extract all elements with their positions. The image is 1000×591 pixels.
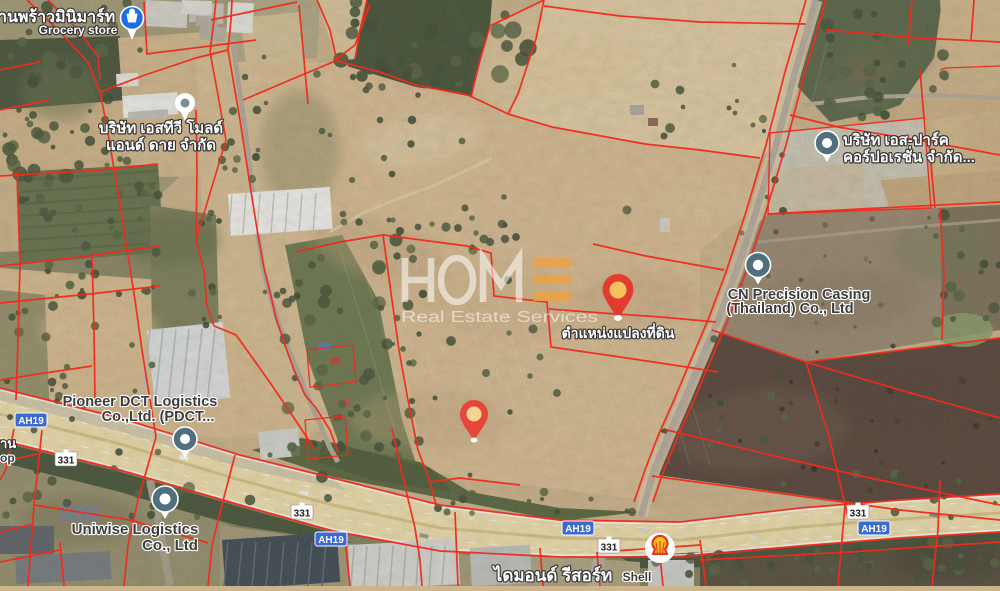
svg-text:Grocery store: Grocery store bbox=[39, 23, 118, 37]
svg-text:Real Estate Services: Real Estate Services bbox=[401, 309, 598, 326]
svg-text:บริษัท เอส-ปาร์ค: บริษัท เอส-ปาร์ค bbox=[843, 131, 949, 149]
svg-text:Co.,Ltd. (PDCT...: Co.,Ltd. (PDCT... bbox=[102, 409, 215, 425]
svg-text:าน: าน bbox=[0, 436, 16, 451]
svg-text:AH19: AH19 bbox=[861, 524, 887, 535]
svg-text:ตำแหน่งแปลงที่ดิน: ตำแหน่งแปลงที่ดิน bbox=[562, 323, 675, 341]
svg-text:Shell: Shell bbox=[623, 570, 652, 584]
svg-text:Uniwise Logistics: Uniwise Logistics bbox=[72, 521, 199, 538]
svg-text:(Thailand) Co., Ltd: (Thailand) Co., Ltd bbox=[726, 301, 853, 317]
svg-text:ไดมอนด์ รีสอร์ท: ไดมอนด์ รีสอร์ท bbox=[492, 565, 612, 585]
svg-text:331: 331 bbox=[58, 456, 75, 467]
svg-text:Co., Ltd: Co., Ltd bbox=[142, 537, 198, 554]
svg-text:Pioneer DCT Logistics: Pioneer DCT Logistics bbox=[63, 394, 218, 410]
svg-text:AH19: AH19 bbox=[565, 524, 591, 535]
svg-text:331: 331 bbox=[601, 543, 618, 554]
svg-text:AH19: AH19 bbox=[18, 416, 44, 427]
svg-text:331: 331 bbox=[294, 509, 311, 520]
svg-text:แอนด์ ดาย จำกัด: แอนด์ ดาย จำกัด bbox=[106, 136, 216, 154]
svg-text:บริษัท เอสทีวี โมลด์: บริษัท เอสทีวี โมลด์ bbox=[99, 118, 223, 137]
svg-text:op: op bbox=[0, 451, 15, 465]
svg-text:คอร์ปอเรชั่น จำกัด...: คอร์ปอเรชั่น จำกัด... bbox=[843, 146, 975, 166]
svg-text:AH19: AH19 bbox=[318, 535, 344, 546]
svg-text:331: 331 bbox=[850, 509, 867, 520]
